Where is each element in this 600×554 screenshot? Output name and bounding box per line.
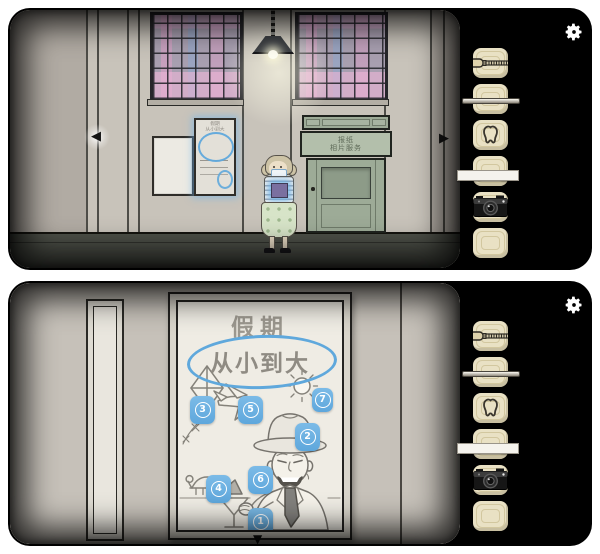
screwdriver-icon <box>473 321 508 351</box>
tooth-icon <box>473 393 508 423</box>
shop-signboard: 报纸 相片服务 <box>300 131 392 157</box>
tag-number: 6 <box>253 472 269 488</box>
wall-seam <box>127 10 129 232</box>
wall-seam <box>86 10 88 232</box>
tag-kite[interactable]: 3 <box>190 396 215 424</box>
blue-highlight-circle <box>217 170 233 189</box>
tag-number: 2 <box>300 429 316 445</box>
nav-left-arrow-icon[interactable]: ◀ <box>91 130 101 143</box>
held-item-highlighted[interactable] <box>271 183 288 198</box>
nav-down-arrow-icon[interactable]: ▼ <box>253 532 262 544</box>
woman-npc[interactable] <box>252 152 304 256</box>
floor-line <box>10 242 460 243</box>
poster-paper: 假期 从小到大 1 2 3 4 5 6 <box>176 300 344 532</box>
inventory-slot-empty[interactable] <box>473 228 508 258</box>
tag-sun[interactable]: 7 <box>312 388 333 412</box>
thin-rod-icon <box>462 98 520 104</box>
inventory-slot-tooth[interactable] <box>473 120 508 150</box>
wall-seam <box>138 10 140 232</box>
inventory-slot-camera[interactable] <box>473 465 508 495</box>
tag-paper-boat[interactable]: 6 <box>248 466 273 494</box>
sidewalk-floor <box>10 232 460 268</box>
camera-icon <box>473 465 508 495</box>
wall-seam <box>400 283 402 544</box>
inventory-slot-paper-strip[interactable] <box>473 156 508 186</box>
adjacent-frame-edge <box>86 299 124 541</box>
inventory-slot-camera[interactable] <box>473 192 508 222</box>
tag-number: 5 <box>243 402 259 418</box>
street-scene: 假期 从小到大 报纸 相片服务 <box>10 10 460 268</box>
game-panel-street: 假期 从小到大 报纸 相片服务 <box>8 8 592 270</box>
nav-right-arrow-icon[interactable]: ▶ <box>439 132 449 145</box>
floral-skirt <box>261 202 297 238</box>
inventory-slot-screwdriver[interactable] <box>473 321 508 351</box>
face <box>269 161 287 176</box>
paper-strip-icon <box>457 170 519 181</box>
tag-number: 7 <box>315 392 331 408</box>
tooth-icon <box>473 120 508 150</box>
tag-airplane[interactable]: 5 <box>238 396 263 424</box>
shoe <box>264 248 275 253</box>
inventory-slot-thin-rod[interactable] <box>473 84 508 114</box>
wall-seam <box>97 10 99 232</box>
sign-line-2: 相片服务 <box>330 144 362 153</box>
inventory-slot-paper-strip[interactable] <box>473 429 508 459</box>
shop-door[interactable] <box>306 158 386 233</box>
blank-wall-poster[interactable] <box>152 136 194 196</box>
lamp-bulb <box>268 50 278 59</box>
camera-icon <box>473 192 508 222</box>
poster-scene: 假期 从小到大 1 2 3 4 5 6 <box>10 283 460 544</box>
eye <box>280 166 282 168</box>
tag-number: 1 <box>253 514 269 530</box>
inventory-slot-screwdriver[interactable] <box>473 48 508 78</box>
door-knob <box>311 187 315 191</box>
hint-wall-poster[interactable]: 假期 从小到大 <box>194 118 236 196</box>
tag-hat[interactable]: 2 <box>295 423 320 451</box>
sign-line-1: 报纸 <box>338 136 354 145</box>
wall-seam <box>443 10 445 232</box>
tag-number: 3 <box>195 402 211 418</box>
left-pillar <box>10 10 86 232</box>
inventory-slot-thin-rod[interactable] <box>473 357 508 387</box>
thin-rod-icon <box>462 371 520 377</box>
tag-turtle[interactable]: 4 <box>206 475 231 503</box>
door-transom <box>302 115 390 130</box>
vacation-poster[interactable]: 假期 从小到大 1 2 3 4 5 6 <box>168 292 352 540</box>
inventory-slot-tooth[interactable] <box>473 393 508 423</box>
paper-strip-icon <box>457 443 519 454</box>
inventory-slot-empty[interactable] <box>473 501 508 531</box>
settings-gear-icon[interactable] <box>564 22 584 42</box>
lamp-chain <box>271 10 275 38</box>
door-lower-panel <box>321 204 371 228</box>
tag-number: 4 <box>211 481 227 497</box>
door-window-panel <box>321 167 371 199</box>
shoe <box>280 248 291 253</box>
hint-poster-text: 假期 从小到大 <box>204 121 227 132</box>
settings-gear-icon[interactable] <box>564 295 584 315</box>
photo-shop[interactable]: 报纸 相片服务 <box>300 115 392 233</box>
screwdriver-icon <box>473 48 508 78</box>
eye <box>273 166 275 168</box>
game-panel-poster: 假期 从小到大 1 2 3 4 5 6 <box>8 281 592 546</box>
right-pillar <box>431 10 460 232</box>
blue-highlight-ellipse <box>198 132 234 162</box>
tag-cocktail-glass[interactable]: 1 <box>248 508 273 532</box>
